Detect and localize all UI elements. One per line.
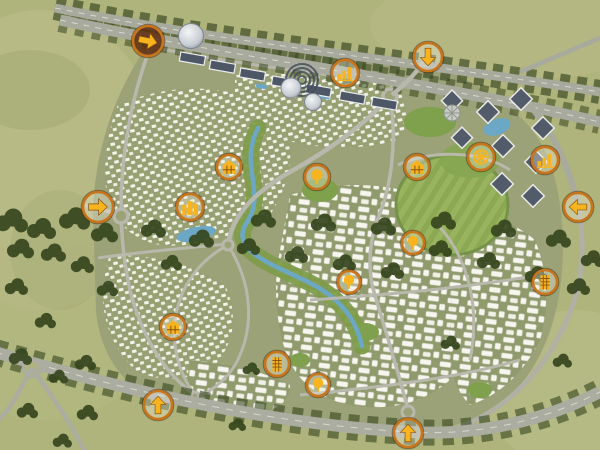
entry-arrow-north-marker[interactable] bbox=[412, 41, 443, 72]
entry-arrow-southeast-marker[interactable] bbox=[392, 417, 423, 448]
community-building-south-marker[interactable] bbox=[263, 350, 290, 377]
building-icon bbox=[272, 357, 281, 371]
entry-arrow-east-marker[interactable] bbox=[562, 191, 593, 222]
ferris-icon bbox=[474, 150, 488, 164]
office-tower-east-marker[interactable] bbox=[531, 268, 558, 295]
clubhouse-south-marker[interactable] bbox=[159, 313, 186, 340]
skyline-bars-north-marker[interactable] bbox=[330, 58, 359, 87]
park-central-marker[interactable] bbox=[303, 163, 330, 190]
mixed-use-center-marker[interactable] bbox=[403, 153, 430, 180]
park-mid-marker[interactable] bbox=[336, 269, 361, 294]
dome-landmark-west bbox=[179, 24, 204, 49]
building-icon bbox=[540, 275, 549, 289]
entry-arrow-south-marker[interactable] bbox=[142, 389, 173, 420]
dome-landmark-center bbox=[281, 78, 301, 98]
entry-arrow-northwest-marker[interactable] bbox=[131, 24, 164, 57]
park-center-east-marker[interactable] bbox=[400, 230, 425, 255]
skyline-bars-east-marker[interactable] bbox=[530, 145, 559, 174]
park-south-marker[interactable] bbox=[305, 372, 330, 397]
towers-west-marker[interactable] bbox=[175, 192, 204, 221]
masterplan-map bbox=[0, 0, 600, 450]
dome-landmark-east bbox=[305, 94, 322, 111]
entry-arrow-west-marker[interactable] bbox=[81, 190, 114, 223]
ferris-wheel-marker[interactable] bbox=[466, 142, 495, 171]
map-canvas bbox=[0, 0, 600, 450]
clubhouse-west-marker[interactable] bbox=[215, 153, 242, 180]
